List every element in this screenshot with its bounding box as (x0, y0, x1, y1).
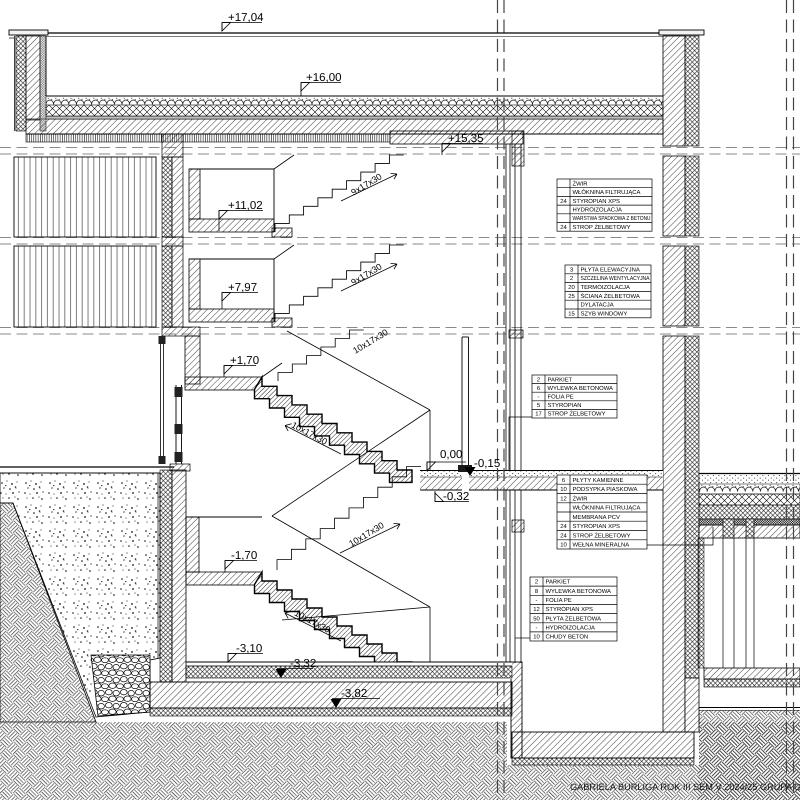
svg-text:PARKIET: PARKIET (548, 376, 573, 383)
svg-text:STROP ŻELBETOWY: STROP ŻELBETOWY (548, 410, 606, 418)
svg-text:2: 2 (570, 275, 573, 282)
svg-text:12: 12 (560, 495, 567, 502)
svg-text:10: 10 (560, 486, 567, 493)
svg-text:17: 17 (535, 411, 542, 418)
svg-text:15: 15 (568, 310, 575, 317)
svg-text:STYROPIAN: STYROPIAN (548, 402, 582, 409)
svg-text:PŁYTY KAMIENNE: PŁYTY KAMIENNE (573, 477, 624, 484)
svg-text:MEMBRANA PCV: MEMBRANA PCV (573, 514, 621, 521)
svg-text:HYDROIZOLACJA: HYDROIZOLACJA (546, 624, 595, 631)
svg-text:0,00: 0,00 (440, 449, 462, 461)
svg-text:24: 24 (560, 532, 567, 539)
svg-text:ŻWIR: ŻWIR (573, 179, 588, 187)
svg-text:24: 24 (560, 523, 567, 530)
svg-text:-: - (538, 395, 540, 401)
svg-text:20: 20 (568, 284, 575, 291)
svg-text:WEŁNA MINERALNA: WEŁNA MINERALNA (573, 542, 630, 549)
svg-text:24: 24 (560, 198, 567, 205)
svg-text:10: 10 (533, 634, 540, 641)
svg-text:PODSYPKA PIASKOWA: PODSYPKA PIASKOWA (573, 486, 638, 493)
svg-text:FOLIA PE: FOLIA PE (548, 394, 574, 401)
svg-text:GABRIELA BURLIGA ROK III SEM V: GABRIELA BURLIGA ROK III SEM V 2024/25 G… (570, 782, 800, 792)
svg-text:WARSTWA SPADKOWA Z BETONU: WARSTWA SPADKOWA Z BETONU (573, 215, 651, 222)
svg-text:-0,15: -0,15 (474, 458, 500, 470)
svg-text:FOLIA PE: FOLIA PE (546, 597, 572, 604)
svg-text:10: 10 (560, 542, 567, 549)
svg-text:PARKIET: PARKIET (546, 579, 571, 586)
svg-text:PŁYTA ŻELBETOWA: PŁYTA ŻELBETOWA (546, 614, 602, 622)
svg-text:TERMOIZOLACJA: TERMOIZOLACJA (581, 284, 630, 291)
svg-text:SZCZELINA WENTYLACYJNA: SZCZELINA WENTYLACYJNA (581, 275, 650, 282)
svg-text:2: 2 (535, 579, 538, 586)
svg-text:STYROPIAN XPS: STYROPIAN XPS (573, 198, 621, 205)
svg-text:WŁÓKNINA FILTRUJĄCA: WŁÓKNINA FILTRUJĄCA (573, 504, 641, 512)
svg-text:25: 25 (568, 293, 575, 300)
svg-text:24: 24 (560, 224, 567, 231)
svg-text:WYLEWKA BETONOWA: WYLEWKA BETONOWA (548, 385, 614, 392)
svg-text:12: 12 (533, 606, 540, 613)
svg-text:ŻWIR: ŻWIR (573, 494, 588, 502)
svg-text:CHUDY BETON: CHUDY BETON (546, 634, 589, 641)
svg-text:ŚCIANA ŻELBETOWA: ŚCIANA ŻELBETOWA (581, 292, 640, 300)
svg-text:STYROPIAN XPS: STYROPIAN XPS (573, 523, 621, 530)
svg-text:-: - (536, 598, 538, 604)
svg-text:STROP ŻELBETOWY: STROP ŻELBETOWY (573, 531, 631, 539)
svg-text:WYLEWKA BETONOWA: WYLEWKA BETONOWA (546, 588, 612, 595)
svg-text:STYROPIAN XPS: STYROPIAN XPS (546, 606, 594, 613)
svg-text:PŁYTA ELEWACYJNA: PŁYTA ELEWACYJNA (581, 266, 640, 273)
svg-text:DYLATACJA: DYLATACJA (581, 302, 614, 309)
svg-text:50: 50 (533, 615, 540, 622)
svg-text:STROP ŻELBETOWY: STROP ŻELBETOWY (573, 223, 631, 231)
svg-text:WŁÓKNINA FILTRUJĄCA: WŁÓKNINA FILTRUJĄCA (573, 188, 641, 196)
svg-text:HYDROIZOLACJA: HYDROIZOLACJA (573, 207, 622, 214)
svg-text:2: 2 (537, 376, 540, 383)
svg-text:-: - (536, 625, 538, 631)
svg-text:SZYB WINDOWY: SZYB WINDOWY (581, 310, 628, 317)
